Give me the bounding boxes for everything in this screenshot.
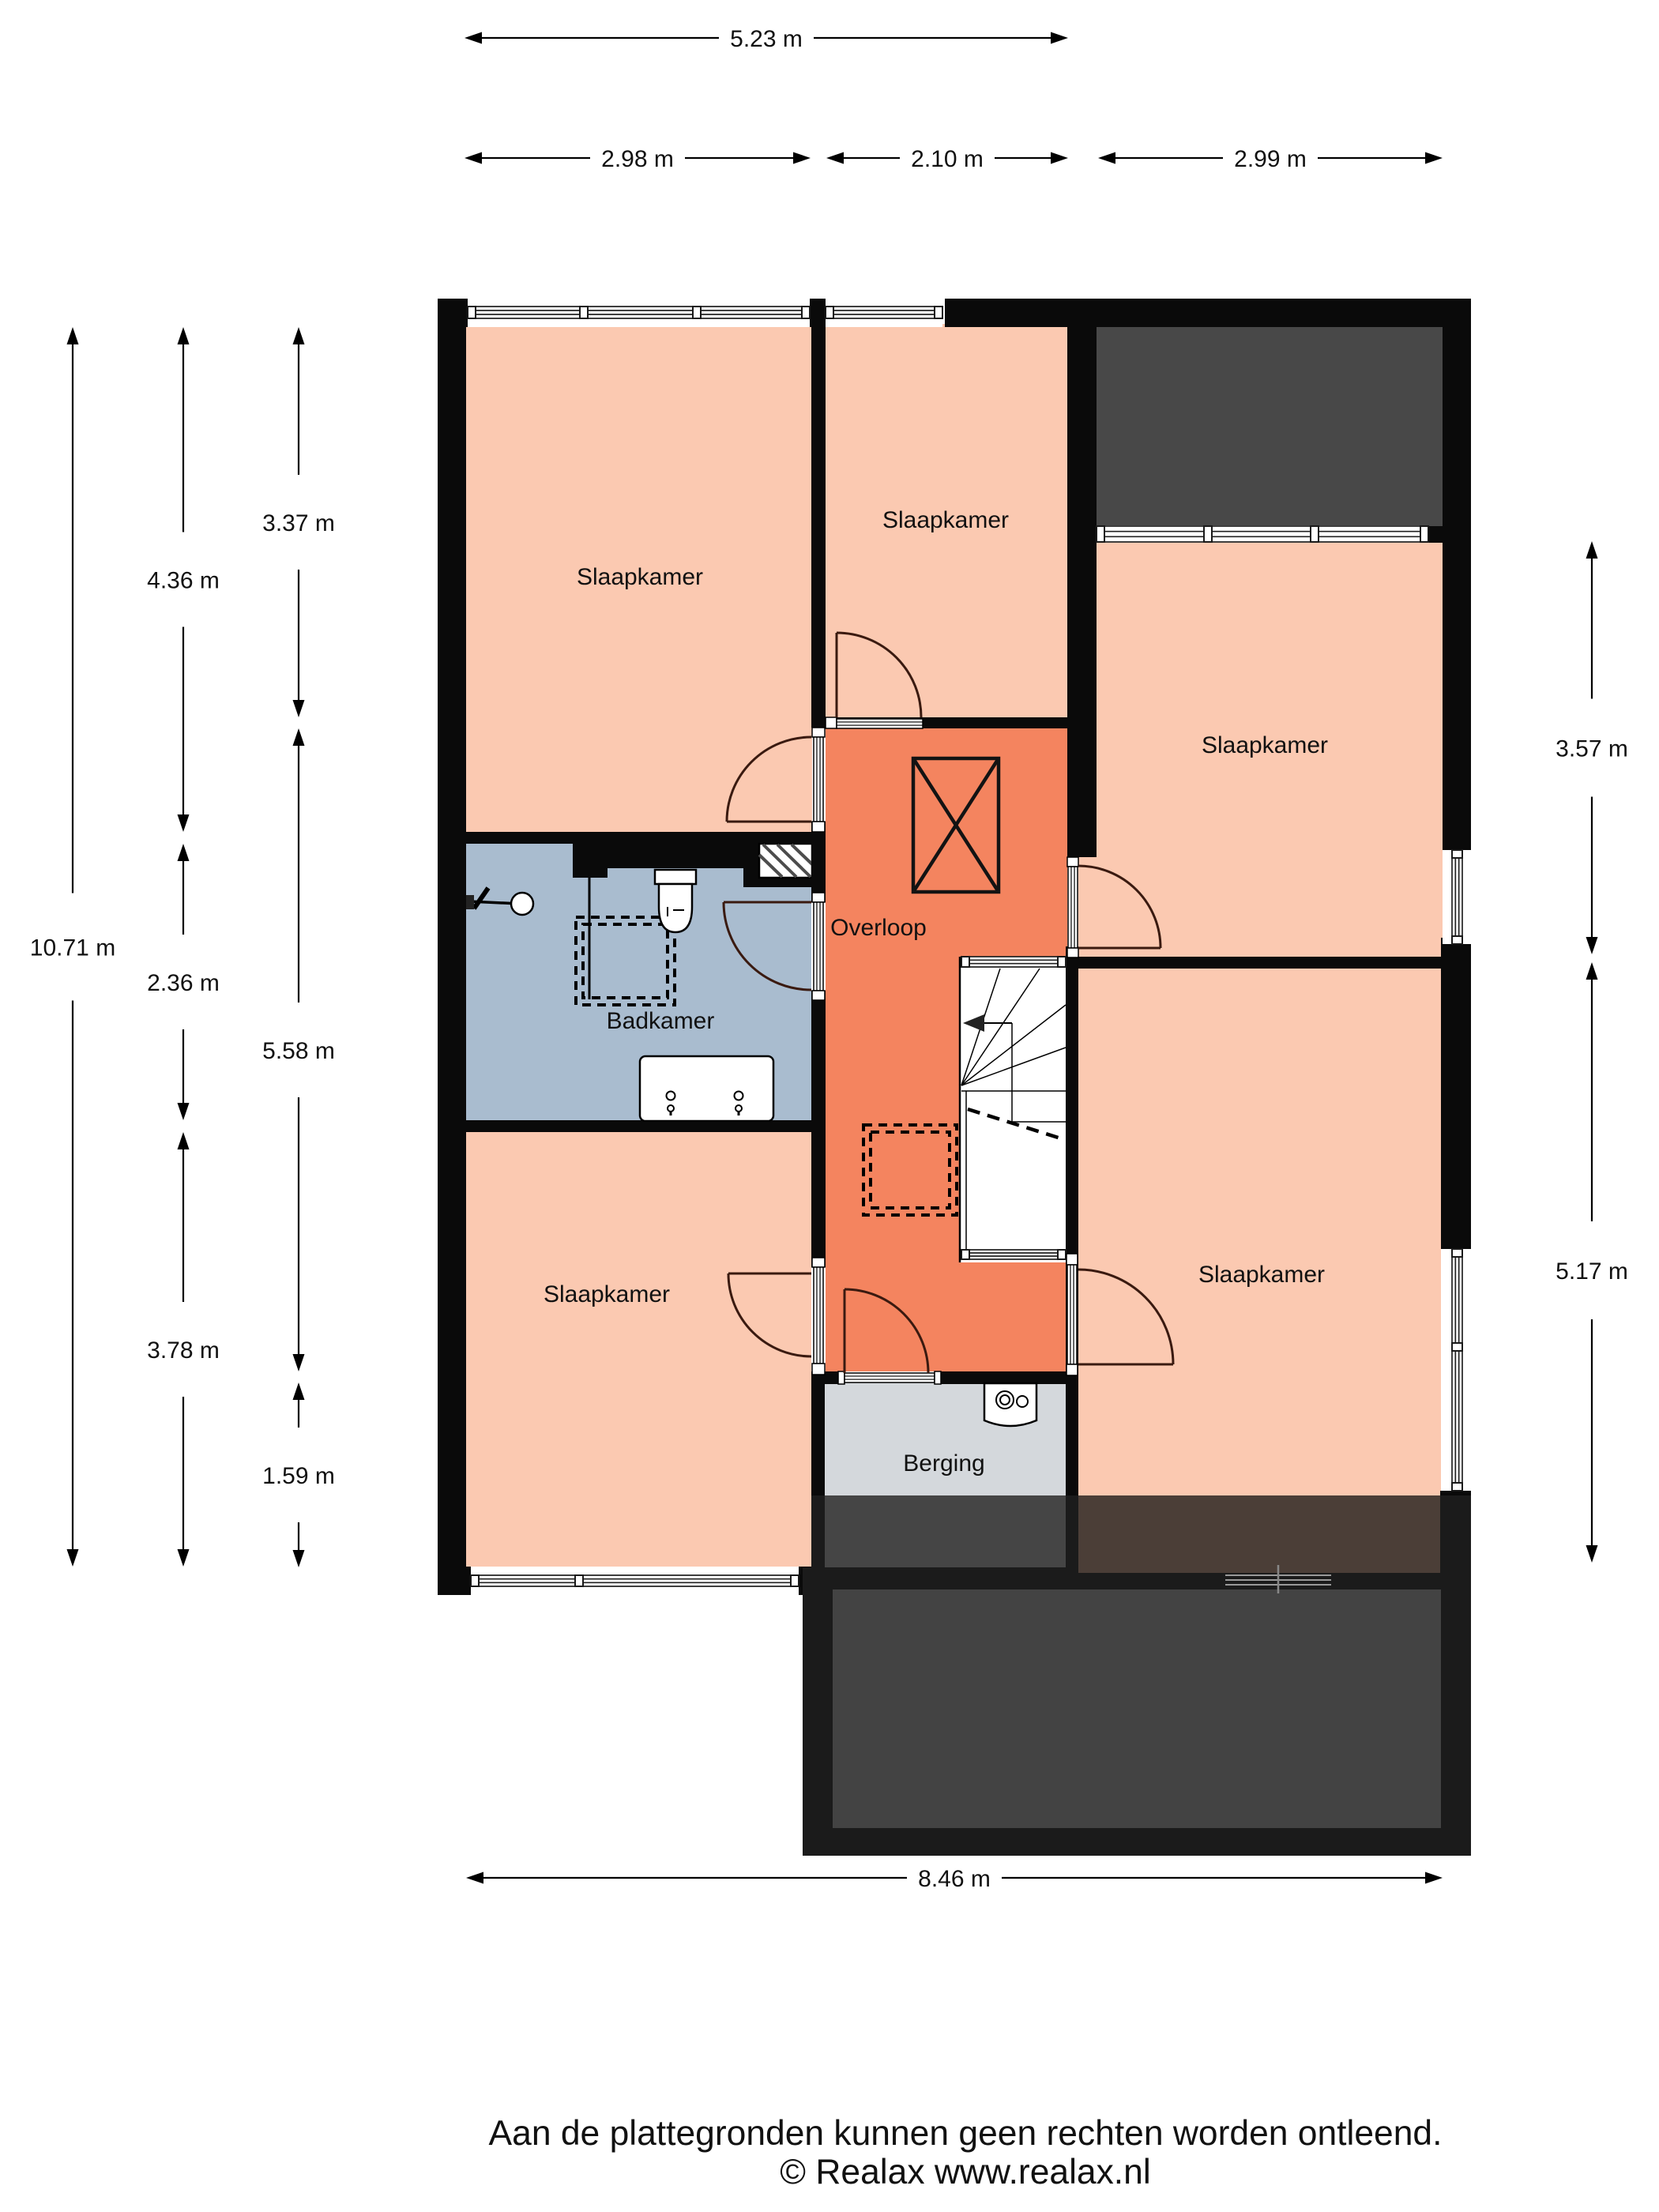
svg-text:4.36 m: 4.36 m <box>147 568 220 594</box>
svg-text:Overloop: Overloop <box>830 915 927 941</box>
svg-text:1.59 m: 1.59 m <box>262 1463 335 1489</box>
svg-text:2.99 m: 2.99 m <box>1234 146 1307 172</box>
svg-text:5.17 m: 5.17 m <box>1556 1258 1628 1285</box>
svg-text:3.37 m: 3.37 m <box>262 510 335 536</box>
svg-text:Slaapkamer: Slaapkamer <box>544 1281 670 1307</box>
svg-text:5.58 m: 5.58 m <box>262 1038 335 1064</box>
svg-text:8.46 m: 8.46 m <box>918 1866 991 1892</box>
svg-text:Aan de plattegronden kunnen ge: Aan de plattegronden kunnen geen rechten… <box>489 2114 1443 2153</box>
svg-text:5.23 m: 5.23 m <box>730 26 803 52</box>
svg-text:© Realax www.realax.nl: © Realax www.realax.nl <box>780 2153 1150 2191</box>
svg-text:10.71 m: 10.71 m <box>30 935 115 961</box>
svg-text:3.57 m: 3.57 m <box>1556 736 1628 762</box>
svg-text:Slaapkamer: Slaapkamer <box>882 507 1009 533</box>
svg-text:Slaapkamer: Slaapkamer <box>577 564 703 590</box>
svg-text:2.36 m: 2.36 m <box>147 970 220 996</box>
svg-text:3.78 m: 3.78 m <box>147 1337 220 1364</box>
svg-text:Berging: Berging <box>903 1450 984 1477</box>
svg-text:Slaapkamer: Slaapkamer <box>1198 1262 1325 1288</box>
svg-text:2.98 m: 2.98 m <box>601 146 674 172</box>
svg-text:Badkamer: Badkamer <box>607 1008 715 1034</box>
svg-text:2.10 m: 2.10 m <box>911 146 984 172</box>
svg-text:Slaapkamer: Slaapkamer <box>1202 732 1328 758</box>
